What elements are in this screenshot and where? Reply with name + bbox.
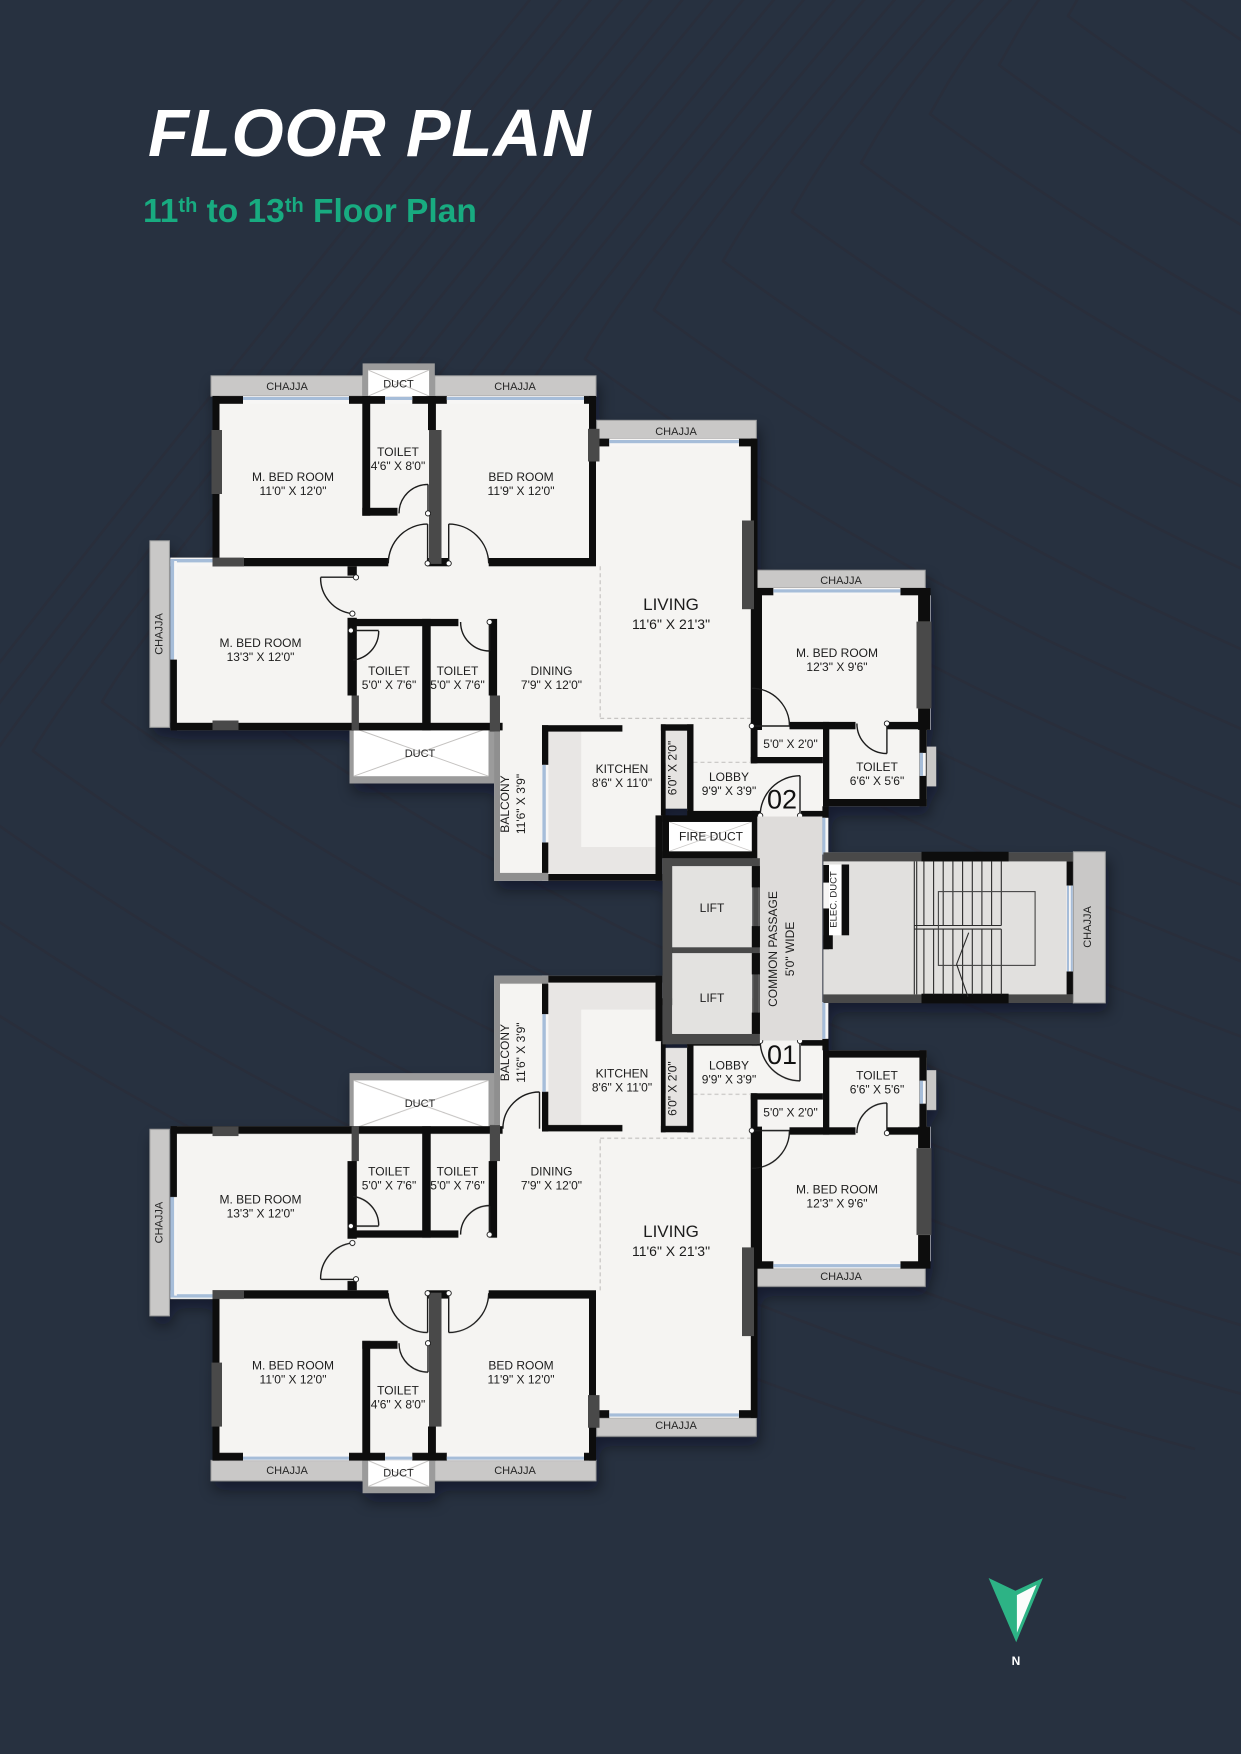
svg-text:LIVING: LIVING	[643, 595, 699, 614]
svg-text:LOBBY: LOBBY	[709, 1059, 749, 1073]
svg-text:12'3" X 9'6": 12'3" X 9'6"	[806, 660, 867, 674]
svg-text:8'6" X 11'0": 8'6" X 11'0"	[592, 776, 652, 790]
svg-text:6'0" X 2'0": 6'0" X 2'0"	[666, 1061, 680, 1115]
svg-text:CHAJJA: CHAJJA	[655, 1420, 697, 1432]
svg-text:8'6" X 11'0": 8'6" X 11'0"	[592, 1081, 652, 1095]
svg-text:11'6" X 21'3": 11'6" X 21'3"	[632, 616, 710, 632]
svg-text:6'6" X 5'6": 6'6" X 5'6"	[850, 1083, 904, 1097]
svg-text:M. BED ROOM: M. BED ROOM	[796, 1183, 878, 1197]
svg-text:5'0" X 2'0": 5'0" X 2'0"	[763, 1106, 817, 1120]
svg-text:CHAJJA: CHAJJA	[266, 1465, 308, 1477]
svg-text:BALCONY: BALCONY	[498, 1024, 512, 1081]
svg-text:5'0" X 7'6": 5'0" X 7'6"	[362, 678, 416, 692]
svg-text:LOBBY: LOBBY	[709, 770, 749, 784]
svg-text:COMMON PASSAGE: COMMON PASSAGE	[766, 891, 780, 1007]
svg-text:01: 01	[767, 1040, 797, 1070]
svg-text:11'6" X 3'9": 11'6" X 3'9"	[514, 1022, 528, 1082]
svg-text:ELEC. DUCT: ELEC. DUCT	[829, 871, 840, 928]
svg-text:11'0" X 12'0": 11'0" X 12'0"	[260, 484, 327, 498]
svg-text:11'0" X 12'0": 11'0" X 12'0"	[260, 1373, 327, 1387]
svg-text:6'6" X 5'6": 6'6" X 5'6"	[850, 774, 904, 788]
svg-text:N: N	[1012, 1654, 1021, 1668]
svg-text:M. BED ROOM: M. BED ROOM	[219, 1193, 301, 1207]
svg-text:13'3" X 12'0": 13'3" X 12'0"	[227, 650, 295, 664]
svg-text:TOILET: TOILET	[368, 1165, 410, 1179]
svg-text:4'6" X 8'0": 4'6" X 8'0"	[371, 1398, 425, 1412]
svg-text:TOILET: TOILET	[437, 1165, 479, 1179]
svg-text:4'6" X 8'0": 4'6" X 8'0"	[371, 459, 425, 473]
svg-text:BED ROOM: BED ROOM	[488, 1359, 553, 1373]
svg-text:M. BED ROOM: M. BED ROOM	[252, 1359, 334, 1373]
svg-text:LIFT: LIFT	[700, 901, 725, 915]
svg-text:CHAJJA: CHAJJA	[1082, 906, 1094, 948]
svg-text:5'0" X 7'6": 5'0" X 7'6"	[430, 1179, 484, 1193]
svg-text:BED ROOM: BED ROOM	[488, 470, 553, 484]
svg-text:TOILET: TOILET	[377, 1384, 419, 1398]
svg-text:9'9" X 3'9": 9'9" X 3'9"	[702, 1073, 756, 1087]
svg-text:TOILET: TOILET	[856, 1069, 898, 1083]
svg-text:M. BED ROOM: M. BED ROOM	[252, 470, 334, 484]
svg-text:02: 02	[767, 785, 797, 815]
svg-text:DUCT: DUCT	[383, 1468, 414, 1480]
svg-text:CHAJJA: CHAJJA	[266, 381, 308, 393]
svg-text:DUCT: DUCT	[405, 1098, 436, 1110]
svg-text:CHAJJA: CHAJJA	[154, 613, 166, 655]
svg-text:DUCT: DUCT	[405, 748, 436, 760]
svg-text:11'9" X 12'0": 11'9" X 12'0"	[488, 1373, 555, 1387]
svg-text:9'9" X 3'9": 9'9" X 3'9"	[702, 784, 756, 798]
svg-text:FIRE DUCT: FIRE DUCT	[679, 830, 744, 844]
svg-text:CHAJJA: CHAJJA	[655, 426, 697, 438]
svg-text:5'0" WIDE: 5'0" WIDE	[783, 922, 797, 977]
svg-text:KITCHEN: KITCHEN	[596, 1067, 649, 1081]
svg-text:DINING: DINING	[531, 664, 573, 678]
svg-text:CHAJJA: CHAJJA	[820, 575, 862, 587]
svg-text:DINING: DINING	[531, 1165, 573, 1179]
svg-text:DUCT: DUCT	[383, 379, 414, 391]
svg-text:M. BED ROOM: M. BED ROOM	[219, 636, 301, 650]
svg-text:CHAJJA: CHAJJA	[820, 1271, 862, 1283]
svg-text:LIVING: LIVING	[643, 1222, 699, 1241]
svg-text:TOILET: TOILET	[377, 445, 419, 459]
svg-text:6'0" X 2'0": 6'0" X 2'0"	[666, 741, 680, 795]
svg-text:CHAJJA: CHAJJA	[494, 381, 536, 393]
svg-text:11'6" X 3'9": 11'6" X 3'9"	[514, 774, 528, 834]
svg-text:KITCHEN: KITCHEN	[596, 762, 649, 776]
svg-text:LIFT: LIFT	[700, 991, 725, 1005]
svg-text:BALCONY: BALCONY	[498, 775, 512, 832]
svg-text:11'6" X 21'3": 11'6" X 21'3"	[632, 1243, 710, 1259]
svg-text:CHAJJA: CHAJJA	[494, 1465, 536, 1477]
svg-text:5'0" X 7'6": 5'0" X 7'6"	[430, 678, 484, 692]
svg-text:7'9" X 12'0": 7'9" X 12'0"	[521, 1179, 582, 1193]
svg-text:M. BED ROOM: M. BED ROOM	[796, 646, 878, 660]
svg-text:FLOOR PLAN: FLOOR PLAN	[148, 96, 592, 171]
svg-text:12'3" X 9'6": 12'3" X 9'6"	[806, 1197, 867, 1211]
svg-text:TOILET: TOILET	[368, 664, 410, 678]
svg-text:5'0" X 2'0": 5'0" X 2'0"	[763, 737, 817, 751]
svg-text:TOILET: TOILET	[437, 664, 479, 678]
svg-text:11'9" X 12'0": 11'9" X 12'0"	[488, 484, 555, 498]
svg-text:7'9" X 12'0": 7'9" X 12'0"	[521, 678, 582, 692]
svg-text:TOILET: TOILET	[856, 760, 898, 774]
svg-text:CHAJJA: CHAJJA	[154, 1201, 166, 1243]
svg-text:5'0" X 7'6": 5'0" X 7'6"	[362, 1179, 416, 1193]
svg-text:13'3" X 12'0": 13'3" X 12'0"	[227, 1207, 295, 1221]
